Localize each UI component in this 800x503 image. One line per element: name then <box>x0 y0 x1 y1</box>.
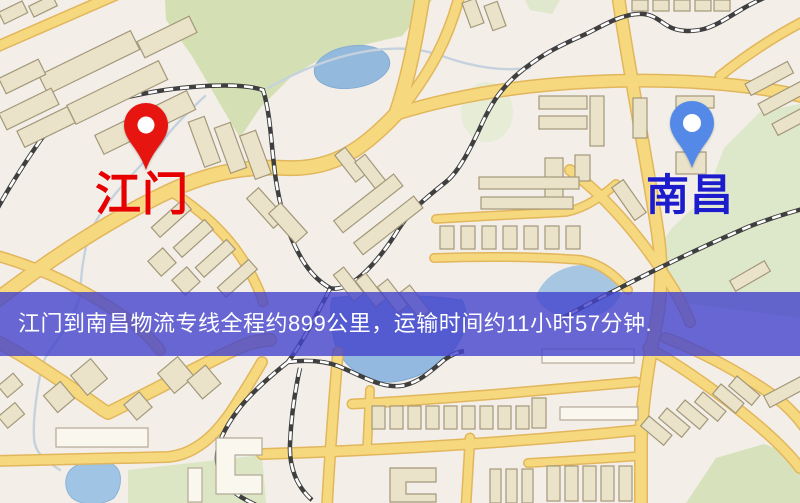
route-summary-text: 江门到南昌物流专线全程约899公里，运输时间约11小时57分钟. <box>18 311 652 336</box>
origin-city-label: 江门 <box>86 171 198 217</box>
route-info-banner: 江门到南昌物流专线全程约899公里，运输时间约11小时57分钟. <box>0 292 800 356</box>
map-canvas[interactable] <box>0 0 800 503</box>
destination-city-label: 南昌 <box>640 175 740 218</box>
destination-pin-icon[interactable] <box>670 101 714 168</box>
origin-pin-icon[interactable] <box>124 103 168 170</box>
map-screenshot: 江门 南昌 江门到南昌物流专线全程约899公里，运输时间约11小时57分钟. <box>0 0 800 503</box>
